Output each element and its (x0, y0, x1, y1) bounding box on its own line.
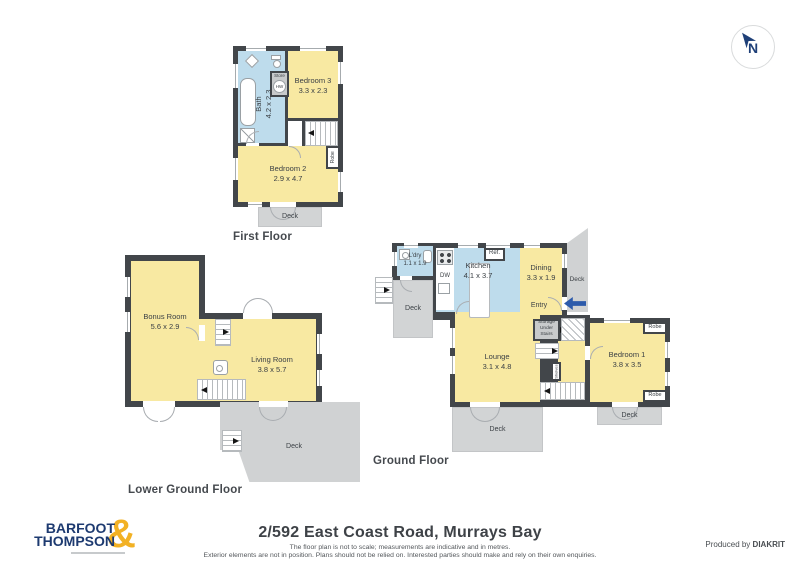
robe-label: Robe (643, 392, 667, 399)
window (233, 158, 238, 180)
ground-floor-title: Ground Floor (373, 455, 449, 467)
logo-word-thompson: THOMPSON (33, 535, 115, 547)
stairs-direction-arrow (201, 387, 207, 393)
stair-landing (288, 121, 302, 146)
hall-corridor (558, 341, 585, 382)
toilet-bowl (273, 60, 281, 68)
bedroom3-label: Bedroom 3 3.3 x 2.3 (288, 76, 338, 96)
laundry-label: L'dry 1.1 x 1.9 (397, 253, 433, 269)
window (246, 46, 266, 51)
robe-label: Robe (643, 324, 667, 331)
window (233, 64, 238, 88)
deck-left-label: Deck (393, 304, 433, 313)
produced-by-text: Produced by (705, 540, 750, 549)
window (125, 277, 130, 297)
deck-right-label: Deck (565, 276, 589, 284)
window (450, 356, 455, 374)
bedroom2-label: Bedroom 2 2.9 x 4.7 (248, 164, 328, 184)
stairs-direction-arrow (233, 438, 239, 444)
shelves-label: Shelves (553, 362, 558, 382)
deck-label: Deck (264, 442, 324, 451)
logo-tagline-line (71, 552, 125, 554)
entry-label: Entry (520, 301, 558, 310)
stairs-direction-arrow (552, 348, 558, 354)
window (248, 202, 262, 207)
toilet-bowl (216, 365, 223, 372)
window (338, 62, 343, 84)
storage-label: Storage Under Stairs (532, 320, 561, 338)
door-opening (243, 313, 272, 319)
window (524, 243, 540, 248)
bath-label: Bath 4.2 x 2.3 (254, 76, 272, 132)
producer-credit: Produced by DIAKRIT (705, 540, 785, 549)
stairs-direction-arrow (544, 388, 550, 394)
ref-label: Ref. (484, 250, 505, 258)
appliance (438, 283, 450, 294)
logo: & BARFOOT THOMPSON (33, 518, 158, 562)
door-arc (243, 298, 258, 313)
first-floor-title: First Floor (233, 231, 292, 243)
window (665, 372, 670, 386)
window (604, 318, 630, 323)
kitchen-label: Kitchen 4.1 x 3.7 (448, 261, 508, 281)
window (300, 46, 326, 51)
deck-label: Deck (258, 212, 322, 221)
deck-bedroom-label: Deck (597, 411, 662, 420)
door-arc (258, 298, 273, 313)
winder-stairs (561, 318, 585, 341)
deck-lounge-label: Deck (452, 425, 543, 434)
door-arc (160, 407, 175, 422)
window (458, 243, 478, 248)
floor-plan-page: Store HW Robe Bath 4.2 x 2.3 Bedroom 3 3… (0, 0, 800, 584)
door-arc (143, 407, 158, 422)
bonus-room-label: Bonus Room 5.6 x 2.9 (129, 312, 201, 332)
compass-n-label: N (748, 40, 758, 56)
stairs-direction-arrow (384, 287, 390, 293)
window (404, 243, 418, 248)
living-room-label: Living Room 3.8 x 5.7 (232, 355, 312, 375)
window (338, 172, 343, 192)
window (562, 254, 567, 268)
hw-label: HW (273, 84, 286, 90)
stairs-direction-arrow (308, 130, 314, 136)
bedroom1-label: Bedroom 1 3.8 x 3.5 (587, 350, 667, 370)
window (317, 334, 322, 354)
window (450, 328, 455, 348)
robe-label: Robe (330, 146, 337, 168)
stairs-direction-arrow (223, 329, 229, 335)
dining-label: Dining 3.3 x 1.9 (520, 263, 562, 283)
window (486, 243, 510, 248)
lounge-label: Lounge 3.1 x 4.8 (457, 352, 537, 372)
window (317, 370, 322, 386)
deck-stairs (222, 430, 242, 452)
toilet (213, 360, 228, 375)
lower-ground-floor-title: Lower Ground Floor (128, 484, 242, 496)
producer-name: DIAKRIT (753, 540, 785, 549)
